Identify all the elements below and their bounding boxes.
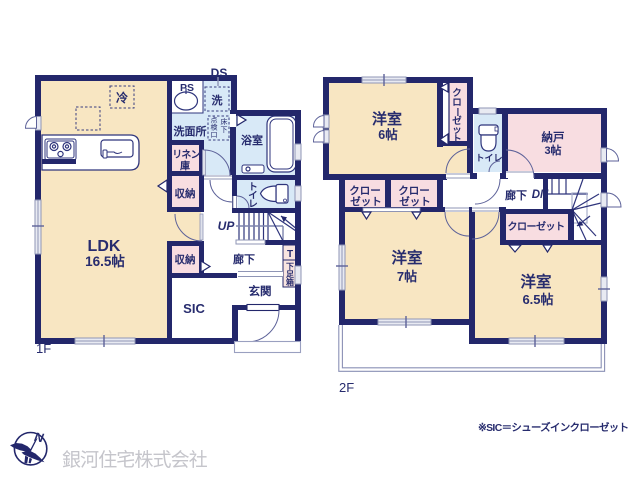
svg-text:床: 床 xyxy=(221,117,228,126)
svg-text:DS: DS xyxy=(211,66,228,80)
svg-text:ゼット: ゼット xyxy=(399,195,431,208)
svg-text:LDK: LDK xyxy=(88,238,121,255)
svg-text:洗: 洗 xyxy=(212,93,223,107)
svg-text:PS: PS xyxy=(180,82,194,94)
svg-text:DN: DN xyxy=(532,189,549,201)
svg-text:UP: UP xyxy=(218,219,236,233)
svg-text:16.5帖: 16.5帖 xyxy=(85,253,125,269)
svg-text:玄関: 玄関 xyxy=(249,284,272,298)
svg-text:クローゼット: クローゼット xyxy=(508,220,565,233)
svg-text:収納: 収納 xyxy=(175,253,196,266)
svg-text:ゼット: ゼット xyxy=(350,195,382,208)
svg-text:2F: 2F xyxy=(339,380,354,395)
svg-text:洋室: 洋室 xyxy=(372,110,402,128)
svg-text:SIC: SIC xyxy=(183,301,205,316)
svg-text:廊下: 廊下 xyxy=(505,188,527,202)
svg-text:浴室: 浴室 xyxy=(241,133,263,147)
svg-text:廊下: 廊下 xyxy=(233,252,255,266)
svg-text:6帖: 6帖 xyxy=(378,127,398,142)
svg-text:T: T xyxy=(287,249,293,260)
svg-text:検: 検 xyxy=(211,123,218,132)
svg-text:収納: 収納 xyxy=(175,187,196,200)
svg-text:6.5帖: 6.5帖 xyxy=(522,292,553,307)
svg-text:トイレ: トイレ xyxy=(475,153,502,163)
svg-text:3帖: 3帖 xyxy=(544,143,561,157)
svg-text:下: 下 xyxy=(221,126,228,134)
svg-text:※SIC＝シューズインクローゼット: ※SIC＝シューズインクローゼット xyxy=(478,421,629,434)
svg-text:N: N xyxy=(33,430,45,446)
svg-text:口: 口 xyxy=(211,131,218,139)
svg-text:ト: ト xyxy=(452,134,462,145)
svg-text:洋室: 洋室 xyxy=(391,248,422,267)
svg-text:1F: 1F xyxy=(36,341,51,356)
svg-text:冷: 冷 xyxy=(116,90,128,105)
svg-text:銀河住宅株式会社: 銀河住宅株式会社 xyxy=(62,449,208,471)
svg-text:納戸: 納戸 xyxy=(542,130,565,144)
svg-text:箱: 箱 xyxy=(286,277,294,287)
svg-text:洋室: 洋室 xyxy=(520,272,551,291)
svg-text:点: 点 xyxy=(211,116,218,124)
svg-text:洗面所: 洗面所 xyxy=(174,124,207,138)
svg-text:庫: 庫 xyxy=(180,160,190,173)
svg-text:7帖: 7帖 xyxy=(397,269,417,284)
svg-text:リネン: リネン xyxy=(172,149,200,161)
svg-text:レ: レ xyxy=(248,199,258,210)
